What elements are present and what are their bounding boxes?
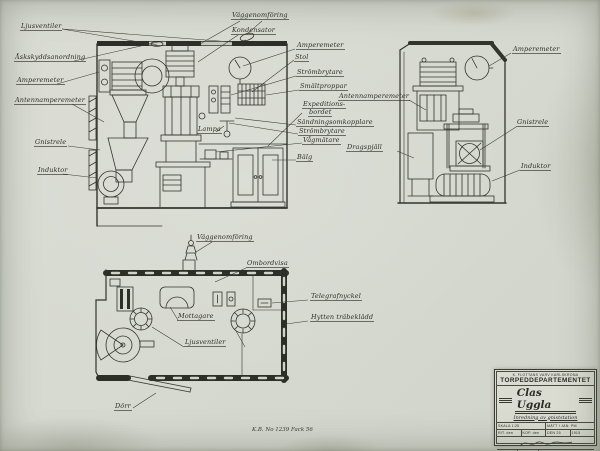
title-department: TORPEDDEPARTEMENTET [497, 377, 594, 386]
archive-note: K.B. No 1239 Fack 56 [252, 427, 313, 433]
label-induktor-right: Induktor [520, 163, 551, 171]
label-antennamperemeter-left: Antennamperemeter [14, 97, 86, 105]
label-mottagare: Mottagare [177, 313, 215, 321]
decorative-bars-icon [579, 398, 592, 403]
label-amperemeter-left: Amperemeter [16, 77, 65, 85]
den-cell: DEN 25 [546, 430, 571, 436]
label-lampa: Lampa [197, 126, 222, 134]
label-vaggenomforing-top: Väggenomföring [231, 12, 289, 20]
label-smaltproppar: Smältproppar [299, 83, 348, 91]
label-strombrytare-1: Strömbrytare [296, 69, 344, 77]
rit-cell: RIT. den [497, 430, 522, 436]
label-amperemeter-mid: Amperemeter [296, 42, 345, 50]
label-ombordvisa: Ombordvisa [246, 260, 289, 268]
title-block: K. FLOTTANS VARV KARLSKRONA TORPEDDEPART… [494, 369, 597, 446]
label-balg: Bälg [296, 154, 313, 162]
label-dragspjall: Dragspjäll [346, 144, 383, 152]
side-elevation-drawing [398, 43, 506, 203]
label-sandningsomkopplare: Sändningsomkopplare [296, 119, 374, 127]
label-induktor-left: Induktor [37, 167, 68, 175]
label-ljusventiler-plan: Ljusventiler [184, 339, 226, 347]
year-cell: 1915 [571, 430, 595, 436]
signature-scribble [516, 437, 576, 449]
drawing-subtitle: Inredning av gniststation [497, 414, 594, 422]
ship-name-row: Clas Uggla [497, 386, 594, 414]
label-antennamperemeter-right: Antennamperemeter [338, 93, 410, 101]
label-vaggenomforing-plan: Väggenomföring [196, 234, 254, 242]
label-dorr: Dörr [114, 403, 132, 411]
signature-row [497, 437, 594, 450]
label-strombrytare-2: Strömbrytare [298, 128, 346, 136]
title-grid: SKALA 1:25 MÄTT I JAN. PM RIT. den KOP. … [497, 422, 594, 451]
label-vagmatare: Vågmätare [302, 137, 341, 145]
drawing-sheet: Ljusventiler Åskskyddsanordning Ampereme… [0, 0, 600, 451]
label-expeditions-2: bordet [308, 109, 332, 117]
leader-lines [57, 21, 520, 408]
label-hytten-trabekladd: Hytten träbeklädd [310, 314, 374, 322]
label-amperemeter-right: Amperemeter [512, 46, 561, 54]
label-askskyddsanordning: Åskskyddsanordning [14, 54, 86, 62]
kop-cell: KOP. den [522, 430, 547, 436]
ship-name: Clas Uggla [515, 387, 577, 414]
measure-cell: MÄTT I JAN. PM [546, 423, 594, 429]
label-gnistrele-left: Gnistrele [34, 139, 67, 147]
front-elevation-drawing [89, 32, 287, 226]
scale-cell: SKALA 1:25 [497, 423, 546, 429]
label-gnistrele-right: Gnistrele [516, 119, 549, 127]
label-stol: Stol [294, 54, 309, 62]
label-kondensator: Kondensator [231, 27, 276, 35]
decorative-bars-icon [499, 398, 512, 403]
label-telegrafnyckel: Telegrafnyckel [310, 293, 362, 301]
label-ljusventiler: Ljusventiler [20, 23, 62, 31]
